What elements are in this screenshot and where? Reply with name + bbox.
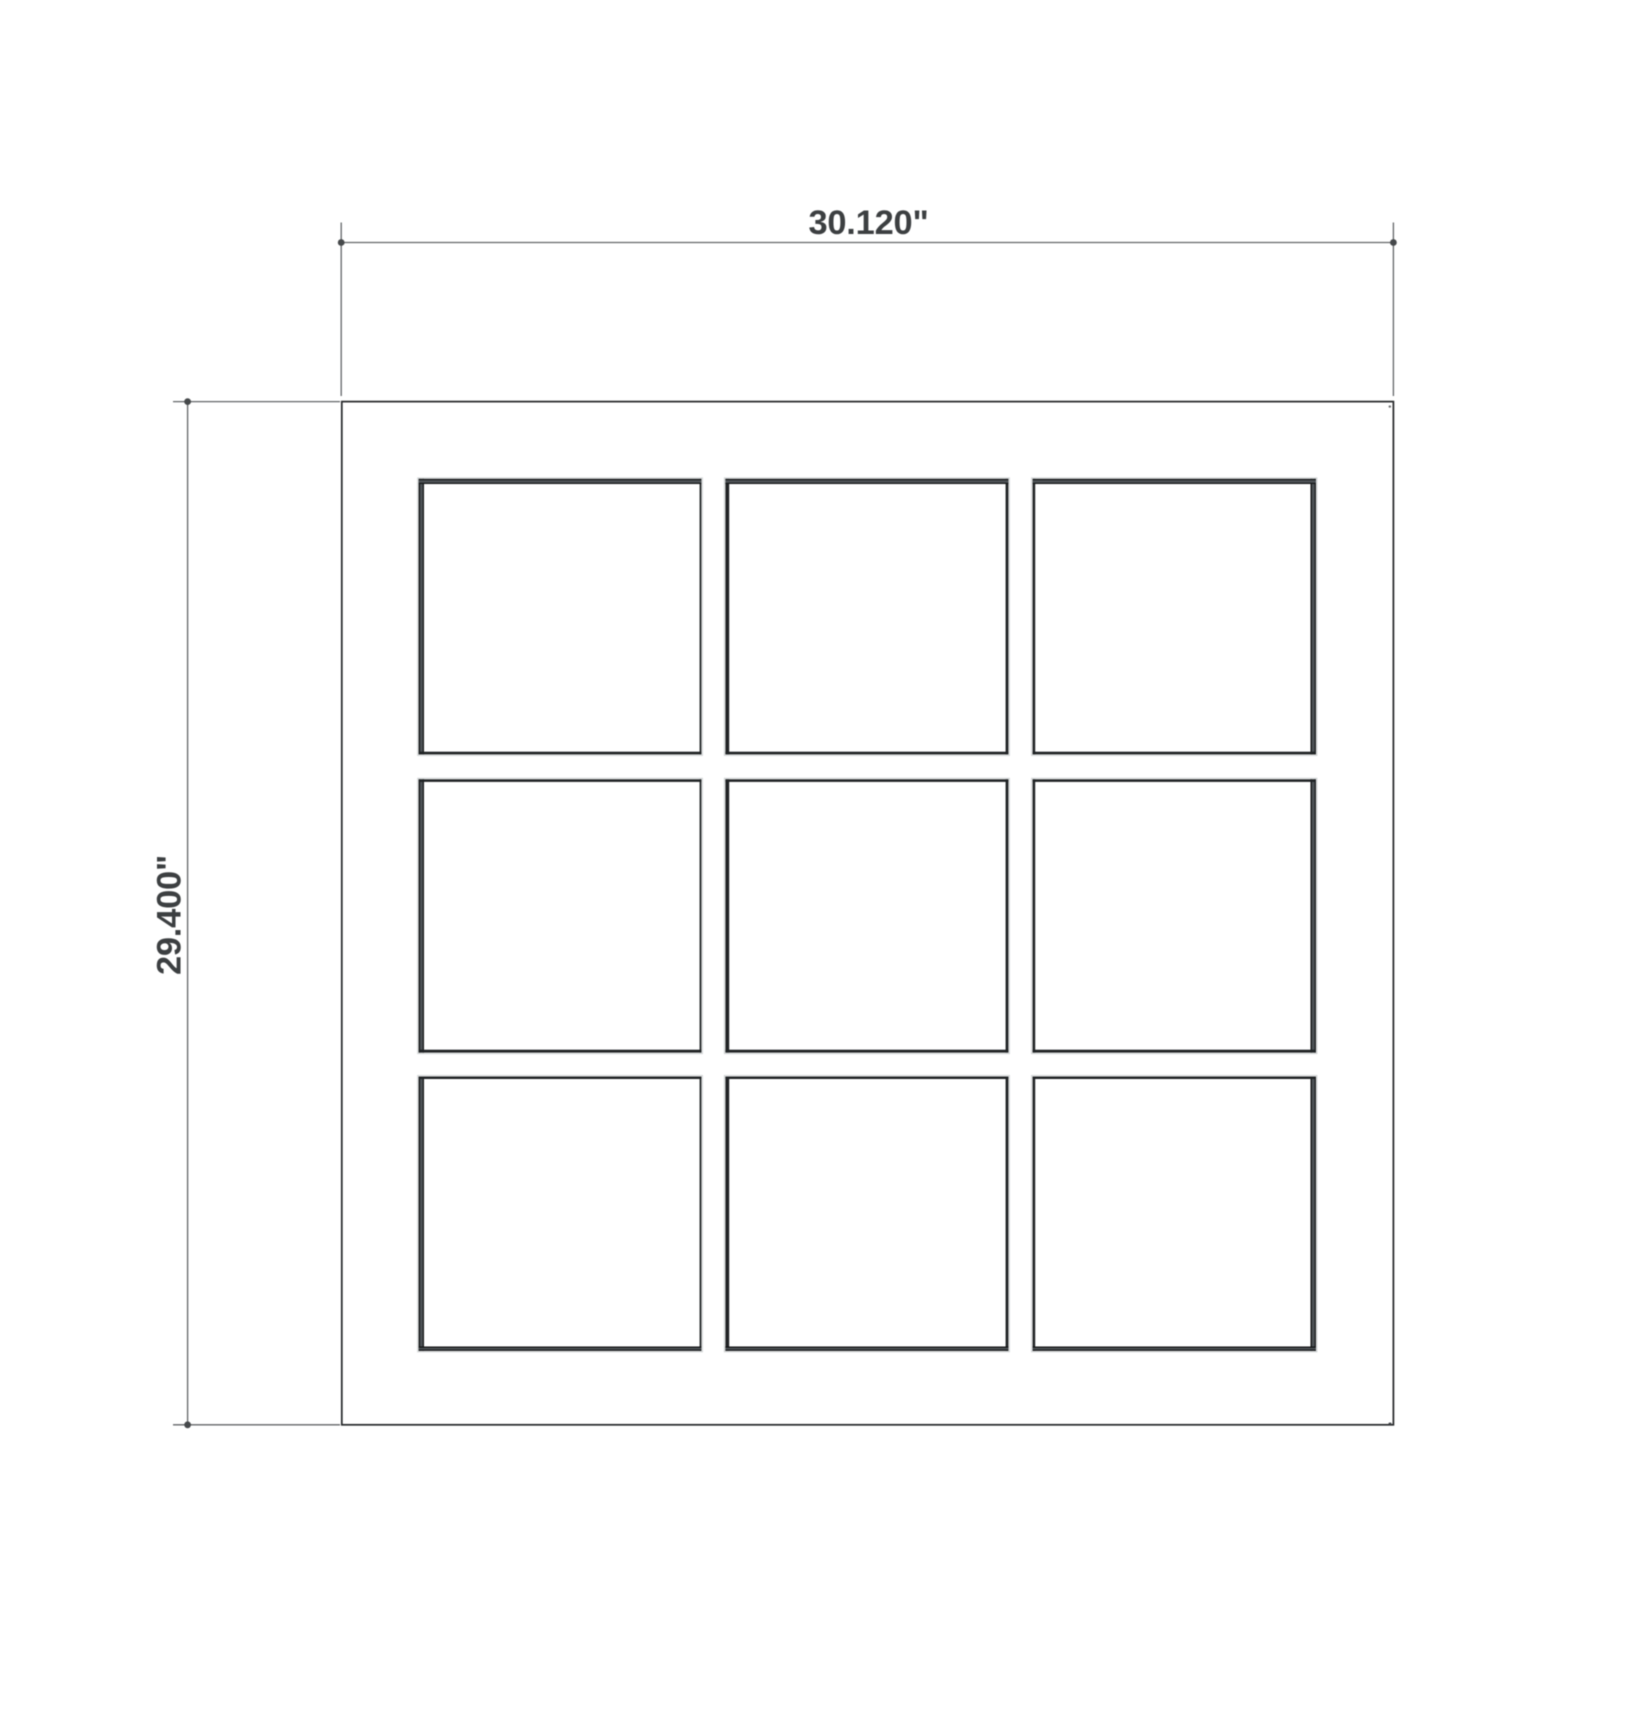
svg-text:29.400": 29.400"	[151, 855, 189, 975]
svg-text:30.120": 30.120"	[808, 204, 928, 242]
